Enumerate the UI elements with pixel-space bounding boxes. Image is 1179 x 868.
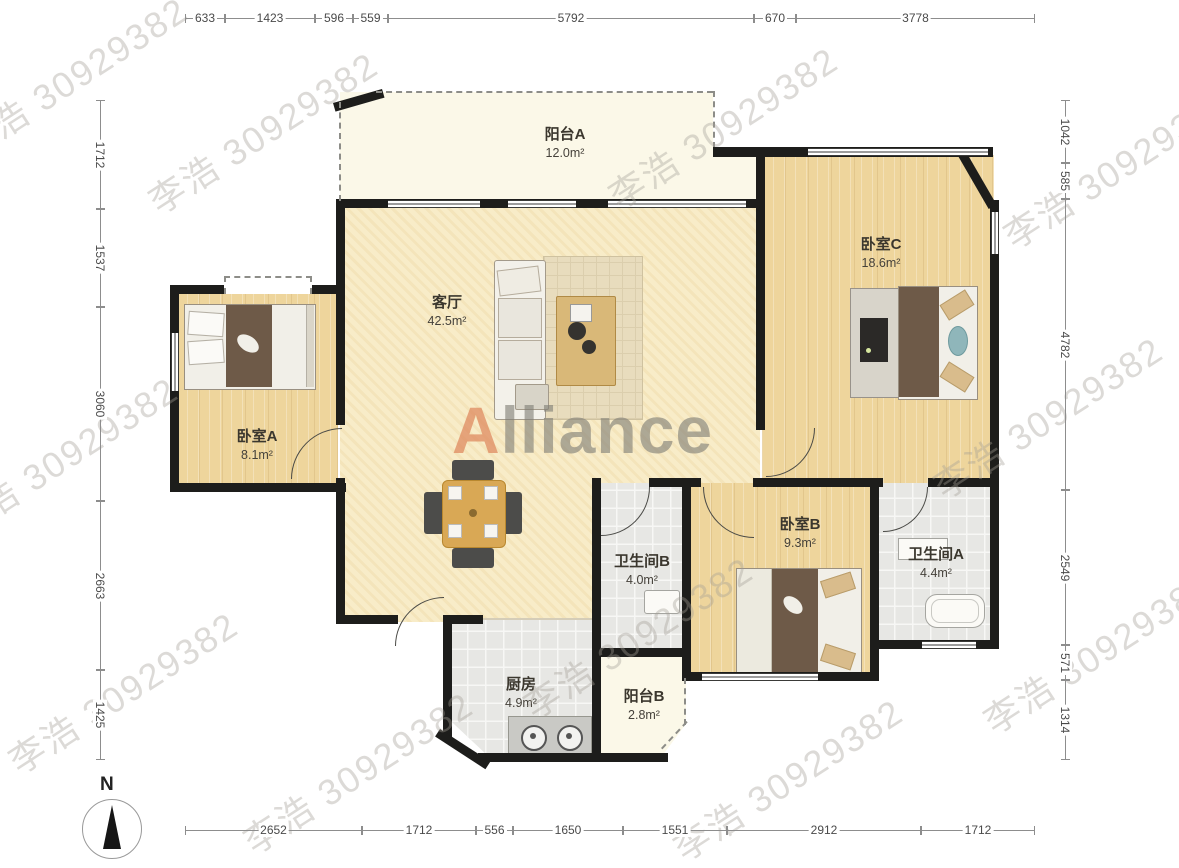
dining-chair xyxy=(452,548,494,568)
dimension-value: 1042 xyxy=(1058,116,1072,147)
table-center xyxy=(469,509,477,517)
compass-needle-icon xyxy=(103,805,121,849)
dimension-value: 1650 xyxy=(553,823,584,837)
dimension-segment: 596 xyxy=(315,10,353,26)
dimension-value: 3060 xyxy=(93,389,107,420)
dimension-value: 1423 xyxy=(255,11,286,25)
compass-north-label: N xyxy=(100,774,114,796)
watermark: 李浩 30929382 xyxy=(662,684,912,868)
room-name: 卫生间A xyxy=(881,546,991,564)
wall-segment xyxy=(928,478,999,487)
dimension-segment: 3778 xyxy=(796,10,1035,26)
dimension-ruler-left: 1712 1537 3060 2663 1425 xyxy=(92,100,108,760)
teapot xyxy=(582,340,596,354)
room-name: 卧室B xyxy=(745,516,855,534)
dimension-segment: 4782 xyxy=(1057,199,1073,490)
bed-c-fan xyxy=(948,326,968,356)
napkin xyxy=(448,486,462,500)
bathtub-inner xyxy=(931,599,979,623)
room-label-bedroom-b: 卧室B 9.3m² xyxy=(745,516,855,551)
window xyxy=(808,148,988,156)
wall-segment xyxy=(170,483,346,492)
dimension-segment: 670 xyxy=(754,10,796,26)
dimension-segment: 1650 xyxy=(513,822,623,838)
room-label-bedroom-c: 卧室C 18.6m² xyxy=(826,236,936,271)
wall-segment xyxy=(601,648,691,657)
wall-segment xyxy=(336,199,345,425)
tv-light xyxy=(866,348,871,353)
wall-segment xyxy=(336,478,345,624)
dimension-value: 596 xyxy=(322,11,346,25)
stove-knob xyxy=(530,733,536,739)
room-area: 9.3m² xyxy=(745,536,855,551)
sofa-cushion xyxy=(498,340,542,380)
dimension-value: 5792 xyxy=(556,11,587,25)
dimension-value: 670 xyxy=(763,11,787,25)
balcony-a-notch xyxy=(713,91,760,148)
dining-chair xyxy=(452,460,494,480)
dimension-segment: 2663 xyxy=(92,501,108,670)
dimension-segment: 2652 xyxy=(185,822,362,838)
wall-segment xyxy=(649,478,701,487)
window xyxy=(922,641,976,649)
dimension-segment: 1712 xyxy=(921,822,1035,838)
room-label-balcony-b: 阳台B 2.8m² xyxy=(589,688,699,723)
room-name: 客厅 xyxy=(392,294,502,312)
room-label-balcony-a: 阳台A 12.0m² xyxy=(510,126,620,161)
dimension-value: 4782 xyxy=(1058,329,1072,360)
wall-segment xyxy=(990,200,999,649)
coffee-table-tray xyxy=(570,304,592,322)
dimension-segment: 3060 xyxy=(92,307,108,501)
dimension-segment: 1551 xyxy=(623,822,727,838)
room-area: 4.0m² xyxy=(587,573,697,588)
dimension-value: 1712 xyxy=(93,139,107,170)
bed-a-footboard xyxy=(306,305,314,387)
room-name: 厨房 xyxy=(466,676,576,694)
dimension-segment: 1423 xyxy=(225,10,315,26)
dimension-value: 571 xyxy=(1058,650,1072,674)
room-name: 卫生间B xyxy=(587,553,697,571)
balcony-a-dashed-edge xyxy=(339,102,341,201)
wall-segment xyxy=(870,478,879,681)
napkin xyxy=(448,524,462,538)
dimension-segment: 2912 xyxy=(727,822,921,838)
room-area: 42.5m² xyxy=(392,314,502,329)
window xyxy=(702,673,818,681)
dimension-segment: 585 xyxy=(1057,163,1073,199)
dimension-value: 2549 xyxy=(1058,552,1072,583)
dimension-segment: 1314 xyxy=(1057,680,1073,760)
room-label-bathroom-b: 卫生间B 4.0m² xyxy=(587,553,697,588)
dimension-segment: 571 xyxy=(1057,645,1073,680)
room-name: 卧室C xyxy=(826,236,936,254)
room-label-bedroom-a: 卧室A 8.1m² xyxy=(202,428,312,463)
dimension-value: 559 xyxy=(358,11,382,25)
room-area: 18.6m² xyxy=(826,256,936,271)
dimension-segment: 1042 xyxy=(1057,100,1073,163)
room-label-kitchen: 厨房 4.9m² xyxy=(466,676,576,711)
room-area: 12.0m² xyxy=(510,146,620,161)
watermark: 李浩 30929382 xyxy=(0,597,247,784)
stove-knob xyxy=(566,733,572,739)
window xyxy=(608,200,746,208)
dimension-segment: 556 xyxy=(476,822,513,838)
dimension-value: 633 xyxy=(193,11,217,25)
window xyxy=(388,200,480,208)
teapot xyxy=(568,322,586,340)
dimension-segment: 2549 xyxy=(1057,490,1073,645)
room-area: 2.8m² xyxy=(589,708,699,723)
room-area: 4.9m² xyxy=(466,696,576,711)
bed-a-pillow xyxy=(187,339,225,365)
window xyxy=(508,200,576,208)
window xyxy=(991,212,999,254)
bay-window-dashed xyxy=(224,276,312,294)
dimension-value: 3778 xyxy=(900,11,931,25)
sofa-cushion xyxy=(497,266,542,297)
dining-chair xyxy=(424,492,444,534)
wall-segment xyxy=(753,478,883,487)
dimension-value: 585 xyxy=(1058,169,1072,193)
bed-b-blanket xyxy=(772,569,818,673)
bed-c-blanket xyxy=(899,287,939,397)
room-name: 卧室A xyxy=(202,428,312,446)
dimension-value: 1712 xyxy=(963,823,994,837)
dimension-value: 1551 xyxy=(660,823,691,837)
dimension-segment: 1537 xyxy=(92,209,108,307)
dimension-value: 2663 xyxy=(93,570,107,601)
room-area: 8.1m² xyxy=(202,448,312,463)
room-name: 阳台A xyxy=(510,126,620,144)
dimension-ruler-right: 1042 585 4782 2549 571 1314 xyxy=(1057,100,1073,760)
watermark: 李浩 30929382 xyxy=(992,72,1179,259)
dimension-value: 2652 xyxy=(258,823,289,837)
dimension-ruler-bottom: 2652 1712 556 1650 1551 2912 1712 xyxy=(185,822,1035,838)
tv xyxy=(860,318,888,362)
bathroom-b-sink xyxy=(644,590,680,614)
wall-segment xyxy=(756,147,765,430)
dimension-segment: 559 xyxy=(353,10,388,26)
dimension-segment: 1712 xyxy=(362,822,476,838)
dimension-value: 1712 xyxy=(404,823,435,837)
dimension-value: 2912 xyxy=(809,823,840,837)
wall-segment xyxy=(478,753,668,762)
watermark: 李浩 30929382 xyxy=(972,557,1179,744)
north-compass-icon xyxy=(82,799,142,859)
ottoman xyxy=(515,384,549,410)
dimension-segment: 1712 xyxy=(92,100,108,209)
bed-b-panel xyxy=(737,569,772,673)
wall-segment xyxy=(443,615,452,737)
bed-a-pillow xyxy=(187,311,225,337)
room-label-living: 客厅 42.5m² xyxy=(392,294,502,329)
window xyxy=(171,333,179,391)
napkin xyxy=(484,524,498,538)
floorplan-canvas: 阳台A 12.0m² 卧室C 18.6m² 客厅 42.5m² 卧室A 8.1m… xyxy=(0,0,1179,868)
dimension-value: 556 xyxy=(482,823,506,837)
dimension-segment: 1425 xyxy=(92,670,108,760)
balcony-a-dashed-edge xyxy=(376,91,713,93)
wall-segment xyxy=(336,615,398,624)
room-area: 4.4m² xyxy=(881,566,991,581)
dimension-value: 1314 xyxy=(1058,705,1072,736)
dimension-ruler-top: 633 1423 596 559 5792 670 3778 xyxy=(185,10,1035,26)
dimension-segment: 633 xyxy=(185,10,225,26)
dimension-segment: 5792 xyxy=(388,10,754,26)
room-label-bathroom-a: 卫生间A 4.4m² xyxy=(881,546,991,581)
napkin xyxy=(484,486,498,500)
dimension-value: 1537 xyxy=(93,243,107,274)
room-name: 阳台B xyxy=(589,688,699,706)
dimension-value: 1425 xyxy=(93,700,107,731)
sofa-cushion xyxy=(498,298,542,338)
